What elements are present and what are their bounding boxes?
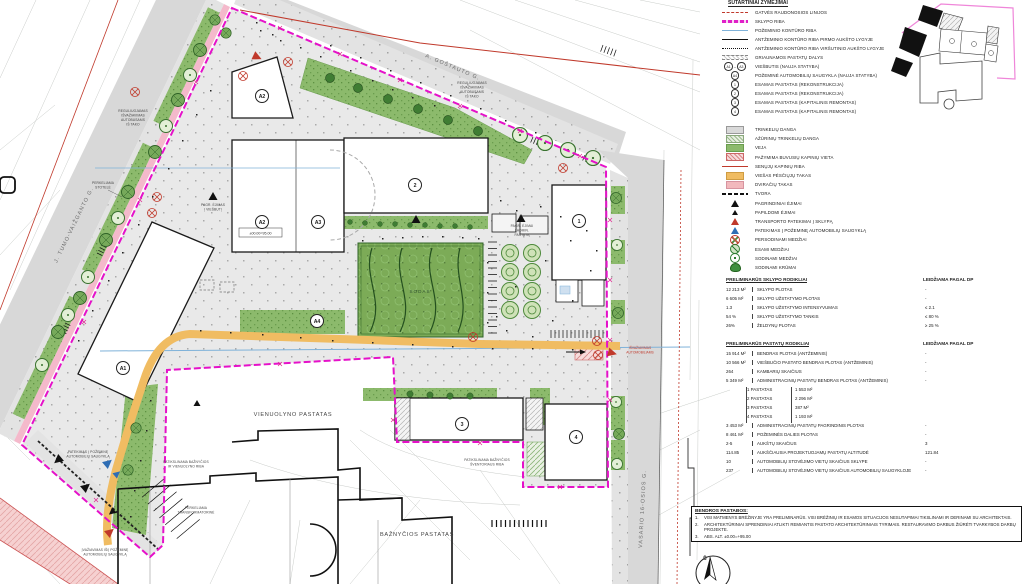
svg-text:REGULIUOJAMAS: REGULIUOJAMAS — [457, 81, 487, 85]
svg-text:TRANSFORMATORINĖ: TRANSFORMATORINĖ — [178, 510, 216, 515]
legend-title: SUTARTINIAI ŽYMĖJIMAI — [728, 0, 788, 7]
svg-text:AUTOMOBILIŲ SAUGYKLĄ: AUTOMOBILIŲ SAUGYKLĄ — [83, 553, 127, 557]
legend-item-label: PERSODINAMI MEDŽIAI — [755, 237, 807, 242]
legend-symbol-icon — [720, 162, 750, 171]
svg-text:±00.00=95.00: ±00.00=95.00 — [249, 232, 271, 236]
svg-text:PERKELIAMA: PERKELIAMA — [185, 506, 208, 510]
legend-symbol-icon: A1–A3 — [720, 62, 750, 71]
table-row: 15 914 M² BENDRAS PLOTAS (ANTŽEMINIS) - — [726, 351, 1023, 360]
elevation-label: ±00.00=95.00 — [239, 228, 282, 237]
svg-text:AUTOBUSAMS: AUTOBUSAMS — [460, 90, 485, 94]
table-row: 1.3 SKLYPO UŽSTATYMO INTENSYVUMAS ≤ 2.1 — [726, 305, 1023, 314]
legend-item: 3 ESAMAS PASTATAS (KAPITALINIS REMONTAS) — [720, 98, 884, 107]
svg-text:PAGR. ĖJIMAI: PAGR. ĖJIMAI — [511, 223, 534, 228]
legend-symbol-icon — [720, 245, 750, 254]
svg-text:BAŽNYČIOS PASTATAS: BAŽNYČIOS PASTATAS — [380, 530, 454, 538]
legend-symbol-icon — [720, 26, 750, 35]
legend-item-label: TVORA — [755, 191, 771, 196]
svg-text:A4: A4 — [314, 319, 321, 325]
table-row: 54 % SKLYPO UŽSTATYMO TANKIS ≤ 80 % — [726, 314, 1023, 323]
legend-symbol-icon — [720, 153, 750, 162]
svg-text:2: 2 — [414, 183, 417, 189]
svg-text:IŠVAŽIAVIMAS: IŠVAŽIAVIMAS — [629, 345, 652, 350]
legend-surface-symbols: TRINKELIŲ DANGA AŽŪRINIŲ TRINKELIŲ DANGA… — [720, 125, 866, 272]
legend-item-label: TRANSPORTO PATEKIMAI Į SKLYPĄ — [755, 219, 833, 224]
svg-text:4: 4 — [575, 435, 578, 441]
svg-text:A3: A3 — [315, 220, 322, 226]
legend-line-symbols: GATVĖS RAUDONOSIOS LINIJOS SKLYPO RIBA P… — [720, 8, 884, 116]
svg-text:Į ADMIN.: Į ADMIN. — [515, 229, 529, 233]
svg-text:PATIKSLINAMA BAŽNYČIOS: PATIKSLINAMA BAŽNYČIOS — [464, 457, 510, 462]
legend-symbol-icon — [720, 44, 750, 53]
svg-text:VIENUOLYNO PASTATAS: VIENUOLYNO PASTATAS — [254, 412, 333, 418]
legend-item-label: ESAMAS PASTATAS (KAPITALINIS REMONTAS) — [755, 109, 856, 114]
building-sub-table: 1 PASTATAS 1 553 M² 2 PASTATAS 2 296 M² … — [746, 387, 877, 423]
legend-item: PAPILDOMI ĖJIMAI — [720, 208, 866, 217]
legend-item-label: PAPILDOMI ĖJIMAI — [755, 210, 796, 215]
legend-symbol-icon — [720, 8, 750, 17]
building-1 — [552, 185, 606, 280]
legend-item-label: SODINAMI KRŪMAI — [755, 265, 797, 270]
table-row: 10 AUTOMOBILIŲ STOVĖJIMO VIETŲ SKAIČIUS … — [726, 459, 1023, 468]
svg-text:IŠ TAKO: IŠ TAKO — [126, 122, 140, 127]
legend-item-label: ESAMAS PASTATAS (REKONSTRUKCIJA) — [755, 82, 844, 87]
svg-text:STOTELĖ: STOTELĖ — [95, 185, 111, 190]
site-plan-sheet: ±00.00=95.00 A. GOŠTAUTO G. J. TUMO-VAIŽ… — [0, 0, 1024, 584]
svg-text:PATIKSLINAMA BAŽNYČIOS: PATIKSLINAMA BAŽNYČIOS — [163, 459, 209, 464]
table-row: 237 AUTOMOBILIŲ STOVĖJIMO VIETŲ SKAIČIUS… — [726, 468, 1023, 477]
svg-text:ĮVAŽIAVIMAS IŠ/Į POŽEMINĘ: ĮVAŽIAVIMAS IŠ/Į POŽEMINĘ — [82, 547, 129, 552]
table-sub-row: 1 PASTATAS 1 553 M² — [747, 387, 877, 396]
legend-panel: SUTARTINIAI ŽYMĖJIMAI GATVĖS RAUDONOSIOS… — [690, 0, 1024, 584]
table-row: 12 213 M² SKLYPO PLOTAS - — [726, 287, 1023, 296]
legend-item: PATEKIMAS Į POŽEMINĘ AUTOMOBILIŲ SAUGYKL… — [720, 226, 866, 235]
legend-item: GATVĖS RAUDONOSIOS LINIJOS — [720, 8, 884, 17]
legend-item-label: PAGRINDINIAI ĖJIMAI — [755, 201, 802, 206]
svg-text:1: 1 — [578, 219, 581, 225]
legend-item: TVORA — [720, 189, 866, 198]
legend-item-label: DVIRAČIŲ TAKAS — [755, 182, 793, 187]
legend-symbol-icon — [720, 199, 750, 208]
legend-item: SENŲJŲ KAPINIŲ RIBA — [720, 162, 866, 171]
legend-symbol-icon — [720, 134, 750, 143]
svg-text:ŠVENTORIAUS RIBA: ŠVENTORIAUS RIBA — [470, 462, 504, 467]
note-item: 2. ARCHITEKTŪRINIAI SPRENDINIAI ATLIKTI … — [695, 522, 1018, 533]
legend-item: A4 POŽEMINĖ AUTOMOBILIŲ SAUGYKLA (NAUJA … — [720, 71, 884, 80]
legend-item: 2 ESAMAS PASTATAS (REKONSTRUKCIJA) — [720, 89, 884, 98]
svg-text:REGULIUOJAMAS: REGULIUOJAMAS — [118, 109, 148, 113]
legend-item-label: SODINAMI MEDŽIAI — [755, 256, 797, 261]
legend-item-label: PATEKIMAS Į POŽEMINĘ AUTOMOBILIŲ SAUGYKL… — [755, 228, 866, 233]
svg-text:IR VIENUOLYNO RIBA: IR VIENUOLYNO RIBA — [168, 465, 205, 469]
svg-text:PERKELIAMA: PERKELIAMA — [92, 181, 115, 185]
legend-item: POŽEMINIO KONTŪRO RIBA — [720, 26, 884, 35]
svg-text:SODAS: SODAS — [409, 289, 430, 294]
legend-symbol-icon — [720, 217, 750, 226]
general-notes-box: BENDROS PASTABOS: 1. VISI MATMENYS BRĖŽI… — [691, 506, 1022, 542]
legend-item: PERSODINAMI MEDŽIAI — [720, 235, 866, 244]
legend-item: AŽŪRINIŲ TRINKELIŲ DANGA — [720, 134, 866, 143]
legend-item-label: ANTŽEMINIO KONTŪRO RIBA VIRŠUTINIO AUKŠT… — [755, 46, 884, 51]
legend-item: PAGRINDINIAI ĖJIMAI — [720, 199, 866, 208]
legend-symbol-icon — [720, 35, 750, 44]
legend-item-label: ESAMAS PASTATAS (KAPITALINIS REMONTAS) — [755, 100, 856, 105]
legend-item-label: VEJA — [755, 145, 766, 150]
legend-item: VIEŠAS PĖSČIŲJŲ TAKAS — [720, 171, 866, 180]
legend-item-label: SENŲJŲ KAPINIŲ RIBA — [755, 164, 805, 169]
note-item: 1. VISI MATMENYS BRĖŽINYJE YRA PRELIMINA… — [695, 515, 1018, 521]
legend-item-label: AŽŪRINIŲ TRINKELIŲ DANGA — [755, 136, 819, 141]
legend-symbol-icon — [720, 171, 750, 180]
svg-text:AUTOBUSAMS: AUTOBUSAMS — [121, 118, 146, 122]
legend-symbol-icon — [720, 125, 750, 134]
legend-item: SODINAMI MEDŽIAI — [720, 254, 866, 263]
legend-item: A1–A3 VIEŠBUTIS (NAUJA STATYBA) — [720, 62, 884, 71]
legend-item-label: POŽEMINĖ AUTOMOBILIŲ SAUGYKLA (NAUJA STA… — [755, 73, 877, 78]
legend-symbol-icon: 1 — [720, 80, 750, 89]
legend-symbol-icon: A4 — [720, 71, 750, 80]
table-row: 5 349 M² ADMINISTRACINIŲ PASTATŲ BENDRAS… — [726, 378, 1023, 387]
site-table-title: PRELIMINARŪS SKLYPO RODIKLIAI — [726, 277, 807, 283]
site-indicators-table: PRELIMINARŪS SKLYPO RODIKLIAI LEIDŽIAMA … — [726, 277, 1023, 332]
legend-symbol-icon — [720, 263, 750, 272]
legend-item: PAŽYMIMA BUVUSIŲ KAPINIŲ VIETA — [720, 153, 866, 162]
legend-item: GRIAUNAMOS PASTATŲ DALYS — [720, 53, 884, 62]
svg-text:A2: A2 — [259, 220, 266, 226]
legend-item: 1 ESAMAS PASTATAS (REKONSTRUKCIJA) — [720, 80, 884, 89]
legend-symbol-icon — [720, 17, 750, 26]
legend-item: TRINKELIŲ DANGA — [720, 125, 866, 134]
building-indicators-table: PRELIMINARŪS PASTATŲ RODIKLIAI LEIDŽIAMA… — [726, 341, 1023, 477]
legend-symbol-icon — [720, 208, 750, 217]
svg-text:A1: A1 — [120, 366, 127, 372]
building-table-allowed-header: LEIDŽIAMA PAGAL DP — [923, 341, 973, 346]
legend-symbol-icon — [720, 189, 750, 198]
svg-text:A2: A2 — [259, 94, 266, 100]
legend-item-label: ESAMI MEDŽIAI — [755, 247, 789, 252]
legend-item: DVIRAČIŲ TAKAS — [720, 180, 866, 189]
legend-item: ANTŽEMINIO KONTŪRO RIBA PIRMO AUKŠTO LYG… — [720, 35, 884, 44]
table-sub-row: 3 PASTATAS 387 M² — [747, 405, 877, 414]
table-row: 8 461 M² POŽEMINĖS DALIES PLOTAS - — [726, 432, 1023, 441]
table-sub-row: 4 PASTATAS 1 193 M² — [747, 414, 877, 423]
table-row: 10 566 M² VIEŠBUČIO PASTATO BENDRAS PLOT… — [726, 360, 1023, 369]
notes-title: BENDROS PASTABOS: — [695, 509, 1018, 514]
legend-item-label: SKLYPO RIBA — [755, 19, 785, 24]
svg-text:IŠVAŽIAVIMAS: IŠVAŽIAVIMAS — [121, 113, 145, 118]
svg-text:IŠ TAKO: IŠ TAKO — [465, 94, 479, 99]
legend-item-label: ESAMAS PASTATAS (REKONSTRUKCIJA) — [755, 91, 844, 96]
table-sub-row: 2 PASTATAS 2 296 M² — [747, 396, 877, 405]
legend-item: VEJA — [720, 143, 866, 152]
table-row: 6 605 M² SKLYPO UŽSTATYMO PLOTAS - — [726, 296, 1023, 305]
legend-symbol-icon — [720, 143, 750, 152]
legend-item: ANTŽEMINIO KONTŪRO RIBA VIRŠUTINIO AUKŠT… — [720, 44, 884, 53]
svg-text:IŠVAŽIAVIMAS: IŠVAŽIAVIMAS — [460, 85, 484, 90]
legend-item: SODINAMI KRŪMAI — [720, 263, 866, 272]
note-item: 3. ABS. ALT. ±0.00=+95.00 — [695, 534, 1018, 540]
legend-item-label: GRIAUNAMOS PASTATŲ DALYS — [755, 55, 823, 60]
legend-symbol-icon — [720, 235, 750, 244]
table-row: 3 453 M² ADMINISTRACINIŲ PASTATŲ PAGRIND… — [726, 423, 1023, 432]
legend-item-label: ANTŽEMINIO KONTŪRO RIBA PIRMO AUKŠTO LYG… — [755, 37, 873, 42]
table-row: 26% ŽELDYNŲ PLOTAS ≥ 25 % — [726, 323, 1023, 332]
legend-item-label: TRINKELIŲ DANGA — [755, 127, 796, 132]
building-table-title: PRELIMINARŪS PASTATŲ RODIKLIAI — [726, 341, 809, 347]
legend-item: ESAMI MEDŽIAI — [720, 244, 866, 253]
svg-text:PAGR. ĖJIMAS: PAGR. ĖJIMAS — [201, 202, 226, 207]
svg-text:3: 3 — [461, 422, 464, 428]
legend-symbol-icon: 2 — [720, 89, 750, 98]
legend-item-label: VIEŠBUTIS (NAUJA STATYBA) — [755, 64, 819, 69]
legend-item-label: VIEŠAS PĖSČIŲJŲ TAKAS — [755, 173, 811, 178]
svg-text:AUTOMOBILIŲ SAUGYKLĄ: AUTOMOBILIŲ SAUGYKLĄ — [66, 455, 110, 459]
site-table-allowed-header: LEIDŽIAMA PAGAL DP — [923, 277, 973, 282]
legend-item-label: PAŽYMIMA BUVUSIŲ KAPINIŲ VIETA — [755, 155, 833, 160]
svg-text:AUTOMOBILIAMS: AUTOMOBILIAMS — [626, 351, 654, 355]
legend-symbol-icon — [720, 226, 750, 235]
svg-text:PATEKIMAS Į POŽEMINĘ: PATEKIMAS Į POŽEMINĘ — [68, 449, 109, 454]
legend-item: 4 ESAMAS PASTATAS (KAPITALINIS REMONTAS) — [720, 107, 884, 116]
legend-item: TRANSPORTO PATEKIMAI Į SKLYPĄ — [720, 217, 866, 226]
building-2-hotel — [344, 138, 488, 213]
legend-symbol-icon — [720, 53, 750, 62]
svg-text:PASTATĄ: PASTATĄ — [515, 233, 531, 237]
table-row: 264 KAMBARIŲ SKAIČIUS - — [726, 369, 1023, 378]
legend-symbol-icon: 4 — [720, 107, 750, 116]
svg-text:Į VIEŠBUTĮ: Į VIEŠBUTĮ — [204, 207, 222, 212]
legend-item: SKLYPO RIBA — [720, 17, 884, 26]
legend-item-label: POŽEMINIO KONTŪRO RIBA — [755, 28, 816, 33]
legend-item-label: GATVĖS RAUDONOSIOS LINIJOS — [755, 10, 827, 15]
legend-symbol-icon: 3 — [720, 98, 750, 107]
legend-symbol-icon — [720, 254, 750, 263]
table-row: 114.85 AUKŠČIAUSIA PROJEKTUOJAMŲ PASTATŲ… — [726, 450, 1023, 459]
table-row: 2-5 AUKŠTŲ SKAIČIUS 3 — [726, 441, 1023, 450]
legend-symbol-icon — [720, 180, 750, 189]
